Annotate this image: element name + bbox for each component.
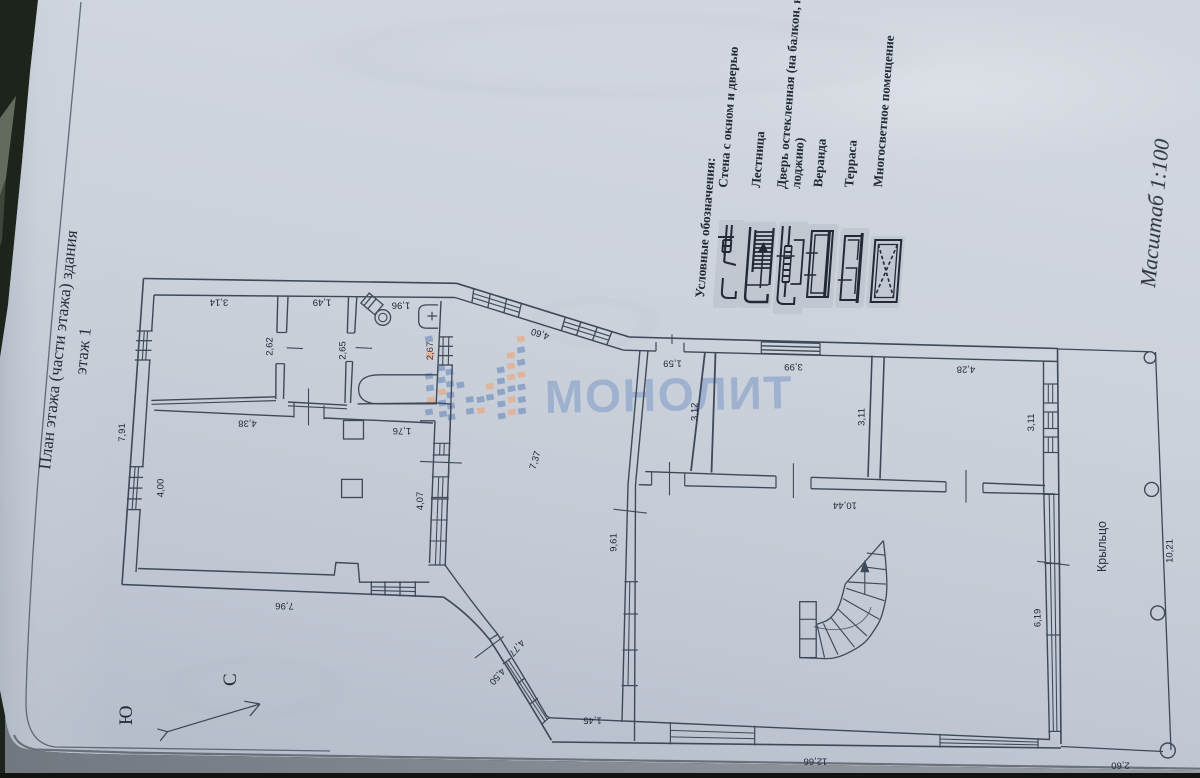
svg-text:МОНОЛИТ: МОНОЛИТ xyxy=(544,366,793,423)
svg-text:7,91: 7,91 xyxy=(117,423,128,442)
svg-text:4,28: 4,28 xyxy=(957,364,976,375)
svg-text:3,12: 3,12 xyxy=(690,403,701,422)
svg-text:Ю: Ю xyxy=(116,705,137,725)
svg-text:9,61: 9,61 xyxy=(609,533,620,552)
svg-text:1,49: 1,49 xyxy=(313,297,332,308)
svg-text:4,38: 4,38 xyxy=(238,418,257,429)
svg-text:2,67: 2,67 xyxy=(425,342,436,361)
svg-text:3,11: 3,11 xyxy=(1026,414,1037,432)
svg-text:1,96: 1,96 xyxy=(392,300,411,311)
svg-text:12,66: 12,66 xyxy=(804,756,828,767)
svg-text:3,99: 3,99 xyxy=(784,361,803,372)
svg-text:1,76: 1,76 xyxy=(393,425,412,436)
svg-text:1,45: 1,45 xyxy=(583,715,602,726)
svg-text:2,62: 2,62 xyxy=(265,337,276,356)
svg-text:3,11: 3,11 xyxy=(857,408,868,426)
svg-text:2,60: 2,60 xyxy=(1111,760,1130,771)
svg-text:6,19: 6,19 xyxy=(1033,609,1044,628)
svg-text:7,96: 7,96 xyxy=(275,600,294,611)
svg-text:3,14: 3,14 xyxy=(210,297,229,308)
svg-text:4,00: 4,00 xyxy=(156,479,167,498)
svg-text:4,07: 4,07 xyxy=(415,492,426,511)
svg-text:10,21: 10,21 xyxy=(1164,539,1175,563)
svg-text:Крыльцо: Крыльцо xyxy=(1095,521,1109,572)
svg-text:2,65: 2,65 xyxy=(338,341,349,360)
svg-text:10,44: 10,44 xyxy=(833,500,857,511)
svg-text:1,59: 1,59 xyxy=(663,358,682,369)
svg-text:С: С xyxy=(220,673,241,686)
